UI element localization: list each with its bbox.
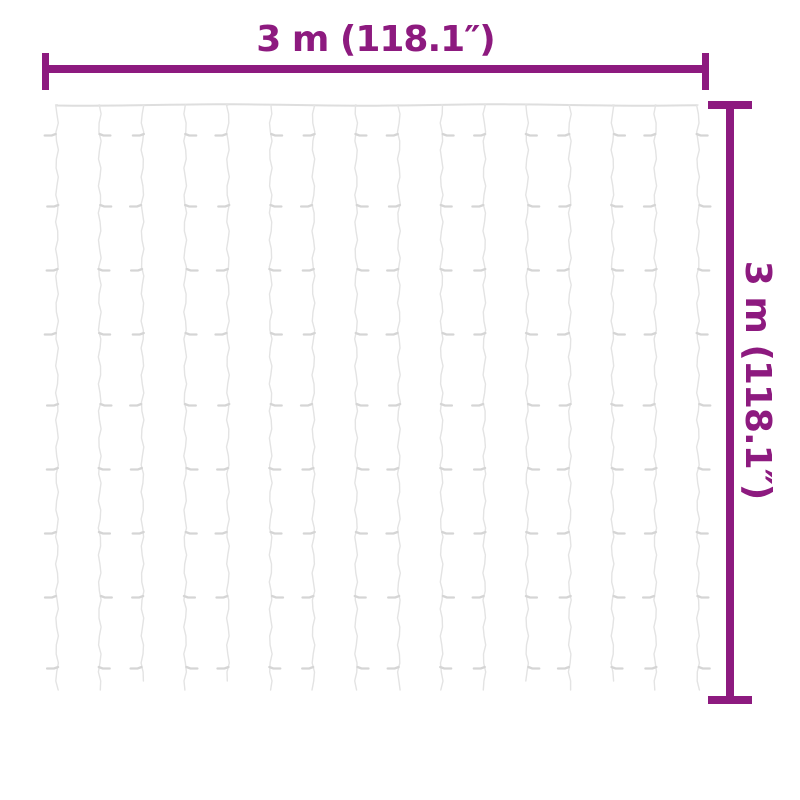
bulb: [356, 532, 367, 534]
bulb: [558, 667, 569, 669]
bulb: [699, 468, 710, 470]
bulb: [475, 532, 486, 534]
bulb: [528, 404, 539, 406]
bulb: [358, 468, 369, 470]
bulb: [474, 468, 485, 470]
bulb: [99, 468, 110, 470]
bulb: [357, 205, 368, 207]
bulb: [186, 667, 197, 669]
bulb: [697, 532, 708, 534]
bulb: [304, 134, 315, 136]
bulb: [698, 269, 709, 271]
bulb: [560, 596, 571, 598]
bulb: [474, 134, 485, 136]
bulb: [185, 404, 196, 406]
bulb: [560, 404, 571, 406]
bulb: [47, 269, 58, 271]
bulb: [528, 205, 539, 207]
curtain-top-wire: [57, 104, 697, 105]
bulb: [643, 596, 654, 598]
bulb: [303, 269, 314, 271]
bulb: [528, 468, 539, 470]
bulb: [387, 468, 398, 470]
bulb: [355, 134, 366, 136]
light-string: [184, 105, 187, 690]
bulb: [559, 205, 570, 207]
bulb: [356, 333, 367, 335]
bulb: [614, 532, 625, 534]
bulb: [304, 532, 315, 534]
bulb: [357, 269, 368, 271]
bulb: [301, 205, 312, 207]
bulb: [187, 468, 198, 470]
bulb: [558, 269, 569, 271]
bulb: [558, 468, 569, 470]
bulb: [131, 468, 142, 470]
horizontal-dimension-label: 3 m (118.1″): [45, 22, 706, 58]
bulb: [131, 269, 142, 271]
bulb: [184, 596, 195, 598]
bulb: [472, 205, 483, 207]
bulb: [47, 205, 58, 207]
bulb: [644, 404, 655, 406]
bulb: [614, 596, 625, 598]
bulb: [217, 269, 228, 271]
bulb: [45, 532, 56, 534]
bulb: [99, 333, 110, 335]
light-string: [440, 105, 443, 690]
bulb: [99, 134, 110, 136]
bulb: [187, 269, 198, 271]
bulb: [133, 532, 144, 534]
bulb: [217, 596, 228, 598]
bulb: [526, 596, 537, 598]
bulb: [612, 269, 623, 271]
bulb: [271, 532, 282, 534]
bulb: [614, 333, 625, 335]
bulb: [133, 134, 144, 136]
vertical-dimension-cap-bottom: [708, 696, 752, 704]
bulb: [558, 333, 569, 335]
bulb: [387, 333, 398, 335]
bulb: [303, 596, 314, 598]
vertical-dimension-line: [726, 101, 734, 704]
bulb: [301, 404, 312, 406]
bulb: [217, 468, 228, 470]
vertical-dimension-cap-top: [708, 101, 752, 109]
curtain-lights-illustration: [0, 0, 800, 800]
bulb: [699, 667, 710, 669]
bulb: [387, 269, 398, 271]
light-string: [355, 105, 358, 690]
bulb: [645, 667, 656, 669]
bulb: [387, 532, 398, 534]
bulb: [388, 667, 399, 669]
bulb: [558, 532, 569, 534]
light-string: [526, 105, 529, 681]
bulb: [699, 404, 710, 406]
bulb: [443, 134, 454, 136]
bulb: [697, 333, 708, 335]
light-string: [697, 105, 700, 690]
bulb: [47, 404, 58, 406]
bulb: [440, 667, 451, 669]
bulb: [389, 205, 400, 207]
bulb: [99, 532, 110, 534]
bulb: [442, 532, 453, 534]
bulb: [98, 269, 109, 271]
bulb: [389, 404, 400, 406]
bulb: [645, 532, 656, 534]
bulb: [440, 468, 451, 470]
bulb: [216, 333, 227, 335]
bulb: [100, 205, 111, 207]
bulb: [216, 134, 227, 136]
product-dimension-diagram: 3 m (118.1″) 3 m (118.1″): [0, 0, 800, 800]
bulb: [185, 134, 196, 136]
light-string: [568, 105, 571, 690]
bulb: [45, 596, 56, 598]
light-string: [56, 105, 59, 690]
bulb: [358, 667, 369, 669]
bulb: [697, 596, 708, 598]
bulb: [271, 404, 282, 406]
bulb: [474, 667, 485, 669]
bulb: [473, 596, 484, 598]
bulb: [646, 269, 657, 271]
bulb: [474, 333, 485, 335]
bulb: [218, 667, 229, 669]
bulb: [302, 667, 313, 669]
bulb: [474, 269, 485, 271]
bulb: [526, 134, 537, 136]
bulb: [612, 468, 623, 470]
bulb: [442, 333, 453, 335]
bulb: [526, 532, 537, 534]
bulb: [355, 596, 366, 598]
bulb: [611, 404, 622, 406]
bulb: [47, 468, 58, 470]
light-string: [227, 105, 230, 681]
light-string: [269, 105, 272, 690]
bulb: [186, 333, 197, 335]
bulb: [100, 404, 111, 406]
bulb: [186, 532, 197, 534]
bulb: [357, 404, 368, 406]
light-string: [611, 105, 614, 681]
bulb: [472, 404, 483, 406]
vertical-dimension-label: 3 m (118.1″): [739, 261, 775, 500]
bulb: [646, 468, 657, 470]
bulb: [130, 404, 141, 406]
bulb: [271, 333, 282, 335]
bulb: [269, 667, 280, 669]
bulb: [645, 333, 656, 335]
bulb: [132, 596, 143, 598]
bulb: [272, 596, 283, 598]
bulb: [270, 205, 281, 207]
bulb: [443, 596, 454, 598]
bulb: [528, 269, 539, 271]
bulb: [644, 205, 655, 207]
bulb: [133, 333, 144, 335]
bulb: [45, 134, 56, 136]
bulb: [441, 205, 452, 207]
bulb: [526, 333, 537, 335]
bulb: [441, 404, 452, 406]
bulb: [611, 205, 622, 207]
light-string: [98, 105, 101, 690]
bulb: [304, 333, 315, 335]
light-string: [483, 105, 486, 690]
bulb: [47, 667, 58, 669]
light-string: [398, 105, 401, 690]
bulb: [269, 269, 280, 271]
bulb: [131, 667, 142, 669]
bulb: [441, 269, 452, 271]
bulb: [130, 205, 141, 207]
bulb: [218, 205, 229, 207]
bulb: [558, 134, 569, 136]
bulb: [45, 333, 56, 335]
light-string: [312, 105, 315, 690]
light-string: [141, 105, 144, 681]
bulb: [528, 667, 539, 669]
bulb: [271, 134, 282, 136]
bulb: [218, 404, 229, 406]
bulb: [99, 667, 110, 669]
bulb: [614, 134, 625, 136]
bulb: [387, 134, 398, 136]
bulb: [644, 134, 655, 136]
horizontal-dimension-line: [45, 65, 706, 73]
bulb: [216, 532, 227, 534]
horizontal-dimension-cap-left: [42, 53, 49, 90]
bulb: [303, 468, 314, 470]
bulb: [269, 468, 280, 470]
bulb: [185, 205, 196, 207]
bulb: [388, 596, 399, 598]
horizontal-dimension-cap-right: [702, 53, 709, 90]
bulb: [699, 205, 710, 207]
bulb: [101, 596, 112, 598]
bulb: [697, 134, 708, 136]
bulb: [612, 667, 623, 669]
light-string: [654, 105, 657, 690]
